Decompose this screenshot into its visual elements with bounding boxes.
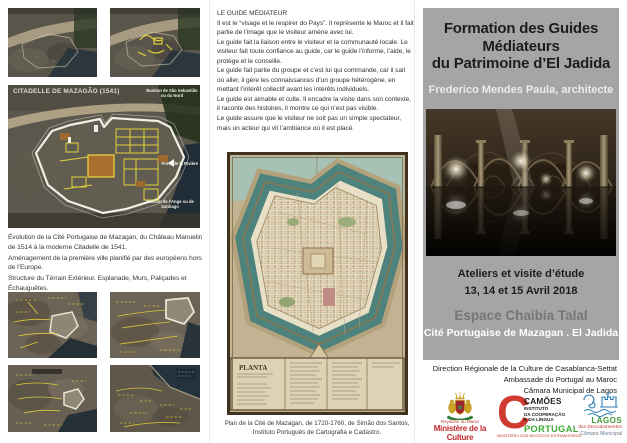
aerial-photo-6: [110, 365, 200, 432]
aerial-photo-5-art: [8, 365, 97, 432]
citadel-label-porte-riviere: Porte de la Rivière: [156, 161, 200, 166]
aerial-photo-5: [8, 365, 97, 432]
aerial-photo-6-art: [110, 365, 200, 432]
guide-paragraph-3: Le guide fait partie du groupe et c’est …: [217, 66, 414, 95]
ministry-name-label: Ministère de la Culture: [424, 424, 496, 442]
guide-heading: LE GUIDE MÉDIATEUR: [217, 9, 414, 19]
camoes-text-block: CAMÕES INSTITUTO DA COOPERAÇÃO E DA LÍNG…: [524, 396, 581, 434]
citadel-image-title: CITADELLE DE MAZAGÃO (1541): [13, 88, 119, 95]
aerial-photo-4-art: [110, 292, 200, 358]
camoes-portugal: PORTUGAL: [524, 424, 581, 434]
plan-caption-line1: Plan de la Cité de Mazagan, de 1720-1760…: [222, 419, 412, 428]
aerial-photo-2-art: [110, 8, 200, 77]
brochure-title: Formation des Guides Médiateurs du Patri…: [423, 20, 619, 73]
title-line-2: Médiateurs: [423, 38, 619, 56]
event-info: Ateliers et visite d’étude 13, 14 et 15 …: [423, 266, 619, 300]
caption-amenagement: Aménagement de la première ville planifi…: [8, 254, 208, 274]
plan-caption-line2: Instituto Português de Cartografia e Cad…: [222, 428, 412, 437]
fold-line-left: [209, 0, 210, 443]
morocco-coat-of-arms-icon: [443, 390, 477, 420]
title-line-3: du Patrimoine d’El Jadida: [423, 55, 619, 73]
lagos-castle-sun-icon: [580, 391, 622, 417]
aerial-photo-3: [8, 292, 97, 358]
cistern-photo-art: [426, 109, 616, 256]
guide-paragraph-2: Le guide fait la liaison entre le visite…: [217, 38, 414, 67]
lagos-name: LAGOS: [578, 417, 622, 425]
guide-paragraph-4: Le guide est aimable et culte. Il encadr…: [217, 95, 414, 114]
caption-structure: Structure du Térrain Extérieur. Esplanad…: [8, 274, 208, 294]
aerial-photo-4: [110, 292, 200, 358]
credit-line-1: Direction Régionale de la Culture de Cas…: [357, 364, 617, 375]
camoes-ministry-label: MINISTÉRIO DOS NEGÓCIOS ESTRANGEIROS: [497, 434, 581, 438]
title-line-1: Formation des Guides: [423, 20, 619, 38]
aerial-photo-1-art: [8, 8, 97, 77]
caption-evolution: Évolution de la Cité Portugaise de Mazag…: [8, 233, 208, 253]
citadel-label-bastion-nord: Bastion de São Sebastião ou du Nord: [146, 88, 198, 99]
ministry-culture-logo: Royaume du Maroc Ministère de la Culture: [424, 390, 496, 442]
event-line-1: Ateliers et visite d’étude: [423, 266, 619, 283]
right-gray-panel: Formation des Guides Médiateurs du Patri…: [423, 8, 619, 360]
citadel-label-bastion-ange: Bastion de l’Ange ou de Santiago: [144, 199, 196, 210]
guide-paragraph-5: Le guide assure que le visiteur ne soit …: [217, 114, 414, 133]
author-name: Frederico Mendes Paula, architecte: [423, 84, 619, 96]
plan-caption: Plan de la Cité de Mazagan, de 1720-1760…: [222, 419, 412, 437]
venue-name: Espace Chaibia Talal: [423, 308, 619, 323]
camoes-name: CAMÕES: [524, 396, 581, 406]
credit-line-2: Ambassade du Portugal au Maroc: [357, 375, 617, 386]
brochure-page: CITADELLE DE MAZAGÃO (1541) Bastion de S…: [0, 0, 627, 443]
cistern-photo: [426, 109, 616, 256]
camoes-logo: C CAMÕES INSTITUTO DA COOPERAÇÃO E DA LÍ…: [497, 394, 581, 438]
guide-paragraph-1: Il est le “visage et le respirer do Pays…: [217, 19, 414, 38]
left-captions: Évolution de la Cité Portugaise de Mazag…: [8, 233, 208, 295]
lagos-municipal-label: Câmara Municipal: [578, 431, 622, 438]
citadel-annotated-photo: CITADELLE DE MAZAGÃO (1541) Bastion de S…: [8, 85, 200, 228]
aerial-photo-2: [110, 8, 200, 77]
venue-location: Cité Portugaise de Mazagan . El Jadida: [423, 327, 619, 339]
lagos-logo: LAGOS dos Descobrimentos Câmara Municipa…: [578, 391, 622, 438]
event-line-2: 13, 14 et 15 Avril 2018: [423, 283, 619, 300]
guide-mediateur-text: LE GUIDE MÉDIATEUR Il est le “visage et …: [217, 9, 414, 133]
plan-legend-title: PLANTA: [239, 364, 267, 372]
camoes-line-3: E DA LÍNGUA: [524, 417, 581, 423]
aerial-photo-1: [8, 8, 97, 77]
aerial-photo-3-art: [8, 292, 97, 358]
